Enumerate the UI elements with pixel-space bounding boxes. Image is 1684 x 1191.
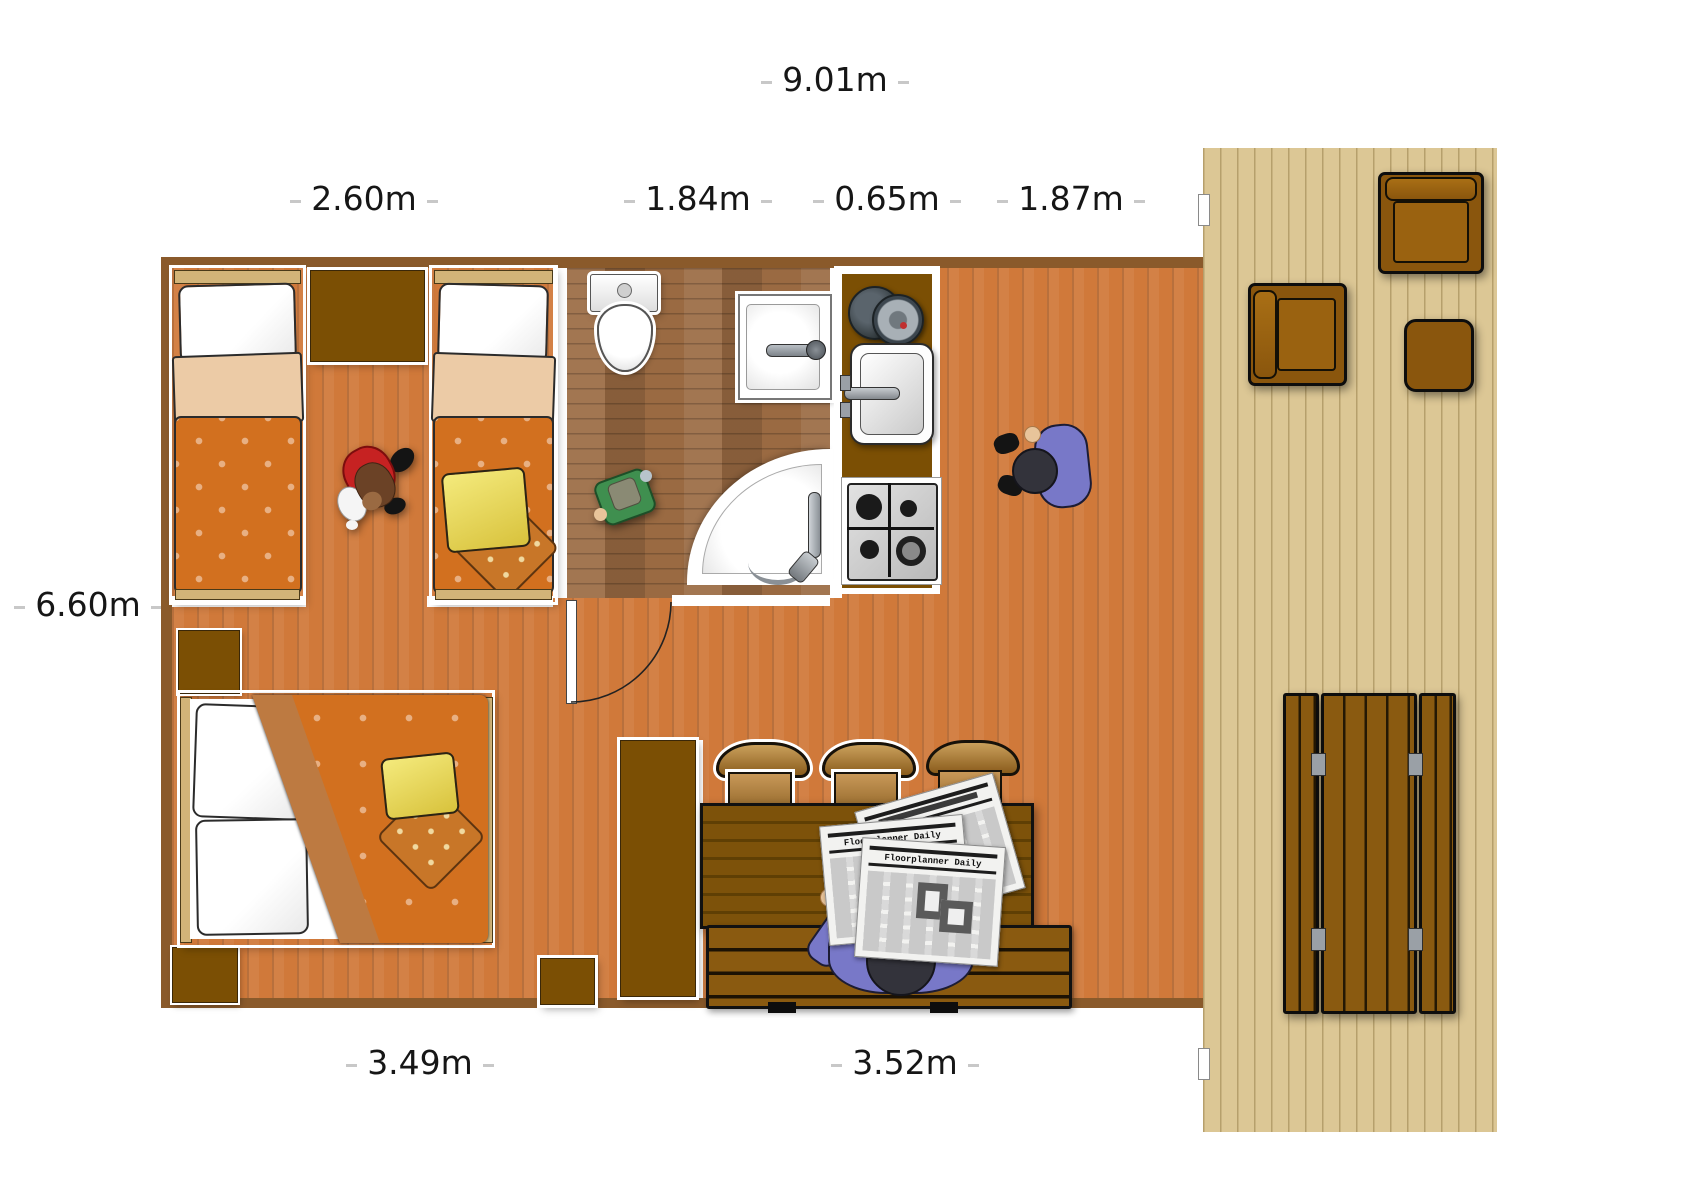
- stove: [841, 477, 942, 585]
- person-standing: [988, 418, 1088, 510]
- bathroom-sink: [738, 294, 832, 400]
- bed-duvet: [174, 416, 302, 594]
- deck-armchair-left: [1248, 283, 1347, 386]
- kitchen-faucet: [844, 387, 900, 400]
- dimension-label-living-width: 1.87m: [1011, 179, 1131, 218]
- toy: [592, 468, 658, 526]
- picnic-bracket: [1408, 928, 1423, 951]
- dining-chair-2: [822, 742, 910, 806]
- shower-handle: [808, 492, 821, 558]
- single-bed-right: [432, 268, 555, 602]
- dimension-label-bottom-bedroom: 3.49m: [360, 1043, 480, 1082]
- door-leaf-bathroom-hall: [566, 600, 577, 704]
- bed-footboard: [435, 589, 552, 600]
- picnic-table: [1321, 693, 1417, 1014]
- hob-grid-line: [888, 483, 891, 577]
- kitchen-faucet-handle: [840, 375, 851, 391]
- wall-bathroom-south: [672, 595, 830, 606]
- wall-west: [161, 257, 172, 1008]
- armchair-seat: [1393, 201, 1469, 263]
- bench-foot: [768, 1002, 796, 1013]
- burner: [860, 540, 879, 559]
- burner: [900, 500, 917, 517]
- bed-pillow: [437, 283, 549, 364]
- corner-shower: [690, 452, 830, 582]
- double-bed: [180, 693, 492, 945]
- yellow-pillow: [441, 466, 532, 553]
- dimension-label-bottom-dining: 3.52m: [845, 1043, 965, 1082]
- dining-wardrobe: [620, 740, 696, 997]
- bedroom-wardrobe: [310, 270, 425, 362]
- deck-entry-marker-top: [1198, 194, 1210, 226]
- picnic-bracket: [1408, 753, 1423, 776]
- nightstand: [178, 630, 240, 694]
- wall-north: [161, 257, 1203, 268]
- dimension-label-bedroom-width: 2.60m: [304, 179, 424, 218]
- cooking-pan-lid: [872, 294, 924, 346]
- dog: [330, 432, 420, 532]
- deck-side-table: [1404, 319, 1474, 392]
- pan-handle-dot: [900, 322, 907, 329]
- picnic-bench-left: [1283, 693, 1319, 1014]
- kitchen-faucet-handle: [840, 402, 851, 418]
- single-bed-left: [172, 268, 303, 602]
- dimension-label-total-width: 9.01m: [775, 60, 895, 99]
- toilet-bowl: [597, 304, 653, 372]
- newspaper-front: Floorplanner Daily: [854, 837, 1006, 967]
- dining-chair-1: [716, 742, 804, 806]
- armchair-backrest: [1385, 177, 1477, 201]
- bench-foot: [930, 1002, 958, 1013]
- picnic-bracket: [1311, 928, 1326, 951]
- toy-wheel: [640, 470, 652, 482]
- armchair-backrest: [1253, 290, 1277, 379]
- toilet: [590, 274, 656, 368]
- floor-plan-canvas: 9.01m 2.60m 1.84m 0.65m 1.87m 6.60m 3.49…: [0, 0, 1684, 1191]
- bed-headboard: [434, 270, 553, 284]
- person-foot: [992, 430, 1022, 456]
- dimension-label-kitchen-width: 0.65m: [827, 179, 947, 218]
- yellow-pillow: [380, 751, 460, 820]
- bedroom-cabinet: [172, 947, 238, 1003]
- burner: [856, 494, 882, 520]
- bed-footboard: [175, 589, 300, 600]
- dimension-label-house-height: 6.60m: [28, 585, 148, 624]
- bed-sheet: [431, 352, 556, 426]
- armchair-seat: [1277, 298, 1336, 371]
- dog-paw: [346, 520, 358, 530]
- bed-pillow: [178, 282, 297, 363]
- picnic-bracket: [1311, 753, 1326, 776]
- toy-wheel: [594, 508, 607, 521]
- picnic-bench-right: [1419, 693, 1456, 1014]
- person-hand: [1024, 426, 1041, 443]
- deck-entry-marker-bottom: [1198, 1048, 1210, 1080]
- dimension-label-bathroom-width: 1.84m: [638, 179, 758, 218]
- newspaper-photo-floorplan: [939, 900, 973, 934]
- person-head: [1012, 448, 1058, 494]
- faucet-knob: [806, 340, 826, 360]
- deck-armchair-top: [1378, 172, 1484, 274]
- toilet-flush-button: [617, 283, 632, 298]
- hall-cabinet: [540, 958, 595, 1005]
- burner-large: [896, 536, 926, 566]
